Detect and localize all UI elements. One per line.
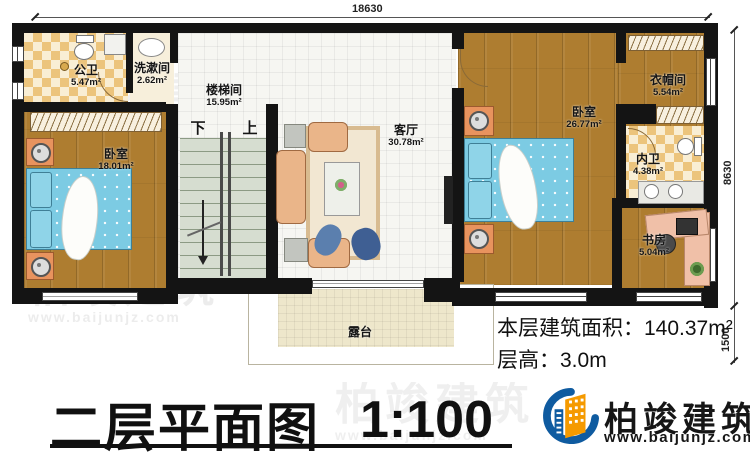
room-label-bedroom-right: 卧室 26.77m² [566,106,601,131]
room-name: 卧室 [566,106,601,120]
room-name: 公卫 [71,64,101,78]
room-area: 15.95m² [206,98,242,109]
terrace-sliding-door [312,280,424,288]
wall-segment [612,198,622,294]
room-label-ensuite-bath: 内卫 4.38m² [633,153,663,178]
room-name: 书房 [639,234,669,248]
closet-hatch [30,112,162,132]
floor-area-label: 本层建筑面积： [497,317,644,340]
room-name: 客厅 [388,124,423,138]
wall-segment [452,88,464,282]
stair-rail [220,132,223,276]
toilet [677,138,694,155]
room-area: 4.38m² [633,167,663,178]
pillow [30,172,52,208]
room-area: 26.77m² [566,120,601,131]
dim-tick [730,357,738,365]
light-fixture [60,62,69,71]
room-label-study: 书房 5.04m² [639,234,669,259]
closet-hatch [656,106,704,124]
pillow [468,143,492,179]
watermark-url: www.baijunjz.com [28,310,253,325]
window [495,292,587,302]
sheet-scale: 1:100 [360,390,493,450]
title-underline [50,444,512,448]
room-label-cloakroom: 衣帽间 5.54m² [650,74,686,99]
room-name: 衣帽间 [650,74,686,88]
toilet-tank [76,35,94,43]
room-label-stair-hall: 楼梯间 15.95m² [206,84,242,109]
top-dimension-line [35,17,710,18]
tv [444,176,453,224]
closet-hatch [628,35,704,51]
wall-segment [278,278,312,294]
window [12,82,24,100]
room-area: 2.62m² [134,76,170,87]
room-area: 18.01m² [98,162,133,173]
stair-rail [228,132,231,276]
floor-plan-sheet: 18630 8630 1500 柏竣建筑 www.baijunjz.com 柏竣… [0,0,750,458]
lamp-icon [31,257,51,277]
stair-up-label: 上 [242,120,257,137]
room-area: 30.78m² [388,138,423,149]
right-dimension-line [734,30,735,363]
floor-area-value: 140.37m² [644,317,733,340]
room-label-living-room: 客厅 30.78m² [388,124,423,149]
nightstand [26,138,54,166]
wall-segment [166,104,178,294]
floor-height-label: 层高： [497,349,560,372]
logo-swoosh-building-icon [542,387,600,445]
room-name: 卧室 [98,148,133,162]
room-name: 洗漱间 [134,62,170,76]
floor-height-line: 层高：3.0m [497,344,607,374]
window [636,292,702,302]
lamp-icon [31,143,51,163]
wall-segment [616,33,626,63]
floor-height-value: 3.0m [560,349,607,372]
nightstand [26,252,54,280]
table-flowers [334,178,348,192]
sofa-armchair [308,122,348,152]
wall-segment [24,102,166,112]
sink [644,184,659,199]
sofa-long [276,150,306,224]
wall-segment [170,33,178,63]
stairs-flight [180,138,266,280]
computer-icon [676,218,698,235]
nightstand [464,106,494,136]
window [706,58,716,106]
window [42,292,138,301]
brand-website: www.baijunjz.com [604,429,750,446]
floor-area-line: 本层建筑面积：140.37m² [497,312,733,342]
pillow [30,210,52,248]
room-label-terrace: 露台 [348,326,372,340]
nightstand [464,224,494,254]
bath-sink [104,34,126,55]
washroom-sink [138,38,165,57]
dim-tick [704,13,712,21]
room-area: 5.47m² [71,78,101,89]
room-name: 楼梯间 [206,84,242,98]
wall-segment [452,23,464,49]
wall-segment [178,278,278,294]
room-name: 内卫 [633,153,663,167]
window [12,46,24,62]
room-name: 露台 [348,326,372,340]
right-dimension-upper-value: 8630 [722,161,734,185]
side-table [284,238,308,262]
pillow [468,181,492,219]
lamp-icon [469,229,489,249]
toilet [74,43,94,60]
room-label-bedroom-left: 卧室 18.01m² [98,148,133,173]
room-area: 5.04m² [639,248,669,259]
wall-segment [616,104,656,124]
toilet-tank [694,137,702,156]
plant-icon [690,262,704,276]
room-area: 5.54m² [650,88,686,99]
wall-segment [12,23,24,298]
room-label-public-bath: 公卫 5.47m² [71,64,101,89]
lamp-icon [469,111,489,131]
room-label-washroom: 洗漱间 2.62m² [134,62,170,87]
stair-arrow-head [198,256,208,265]
brand-logo-icon [542,387,600,445]
stair-down-label: 下 [190,120,205,137]
sink [668,184,683,199]
side-table [284,124,306,148]
wall-segment [12,23,718,33]
top-dimension-value: 18630 [352,3,383,15]
